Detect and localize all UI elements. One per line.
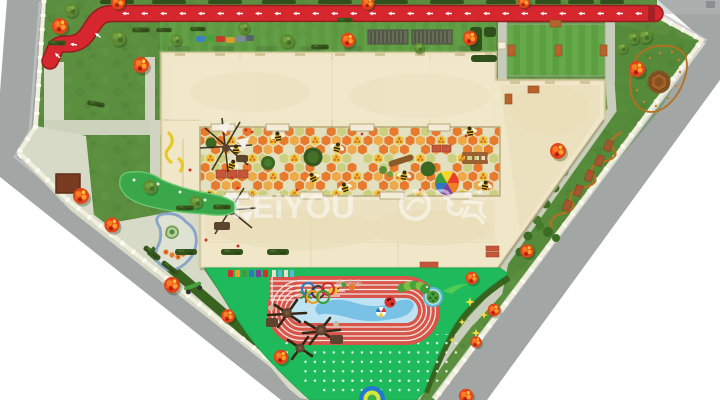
svg-text:FEiYOU: FEiYOU: [232, 188, 355, 225]
